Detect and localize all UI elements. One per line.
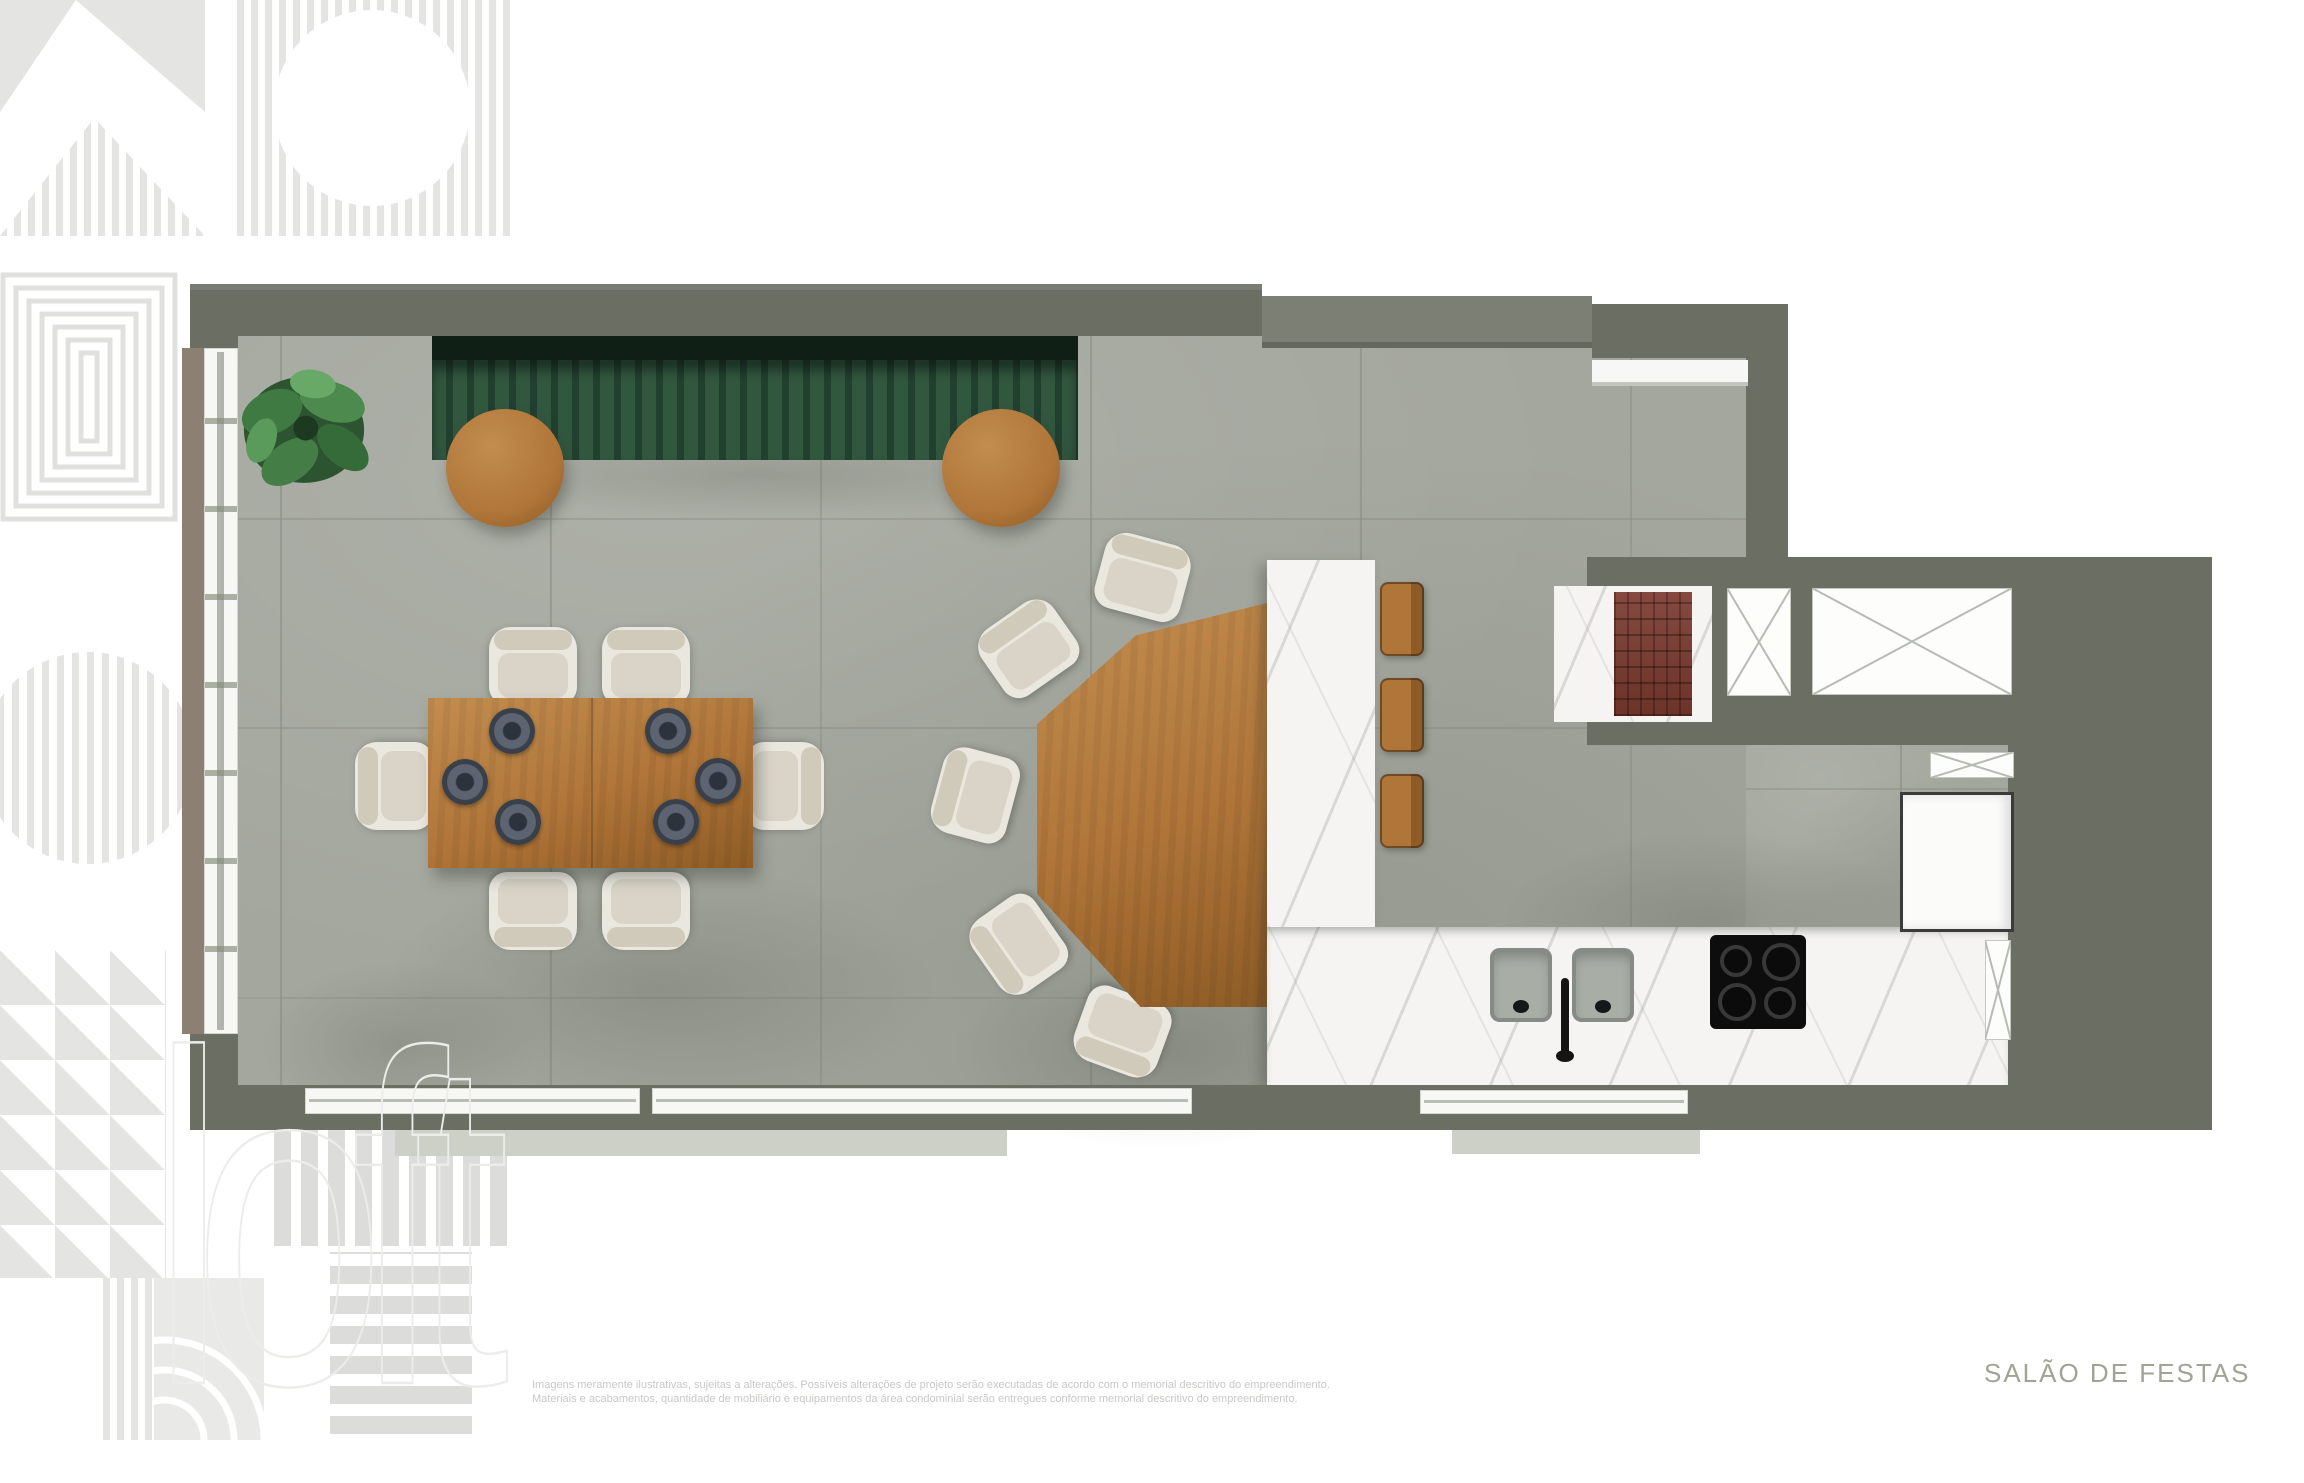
left-wall-top-corner <box>190 296 238 348</box>
striped-triangle-shape <box>0 118 205 236</box>
cooktop <box>1710 935 1806 1029</box>
round-side-table-2 <box>942 409 1060 527</box>
round-side-table-1 <box>446 409 564 527</box>
disclaimer-text: Imagens meramente ilustrativas, sujeitas… <box>532 1378 1532 1406</box>
dining-chair <box>489 872 577 950</box>
dinner-plate <box>442 759 488 805</box>
chair-back <box>358 747 378 825</box>
dinner-plate <box>489 708 535 754</box>
cooktop-burner <box>1764 987 1796 1019</box>
circle-shape <box>274 10 470 206</box>
chair-seat <box>498 653 568 698</box>
chair-seat <box>498 879 568 924</box>
sink-drain <box>1513 1000 1529 1013</box>
chair-back <box>494 927 572 947</box>
loft-watermark: loft <box>150 1005 475 1437</box>
pattern-stripe-bar <box>96 1278 154 1440</box>
bar-stool <box>1380 774 1424 848</box>
shaft-large <box>1812 588 2012 695</box>
counter-end-shaft <box>1985 940 2011 1040</box>
chair-back <box>607 927 685 947</box>
vent-rect <box>1930 752 2014 778</box>
chair-back <box>607 630 685 650</box>
cooktop-burner <box>1718 983 1756 1021</box>
grill-churrasqueira <box>1614 592 1692 716</box>
chair-back <box>801 747 821 825</box>
monstera-plant <box>215 345 393 513</box>
exterior-step-left <box>395 1130 1007 1156</box>
top-wall <box>190 284 1262 336</box>
exterior-step-right <box>1452 1130 1700 1154</box>
bar-stool <box>1380 582 1424 656</box>
dinner-plate <box>645 708 691 754</box>
door-track-line <box>656 1099 1188 1102</box>
shaft-small <box>1727 588 1791 696</box>
chair-seat <box>611 653 681 698</box>
dinner-plate <box>653 799 699 845</box>
table-seam <box>591 698 593 868</box>
kitchen-wing-inner-block <box>2008 745 2167 1085</box>
disclaimer-line-1: Imagens meramente ilustrativas, sujeitas… <box>532 1378 1532 1392</box>
disclaimer-line-2: Materiais e acabamentos, quantidade de m… <box>532 1392 1532 1406</box>
room-name-label: SALÃO DE FESTAS <box>1984 1358 2250 1389</box>
plant-leaves <box>215 345 393 513</box>
pattern-triangle-checker <box>0 950 166 1278</box>
refrigerator <box>1900 792 2014 932</box>
window-glass-line <box>217 352 224 1030</box>
top-wall-step <box>1262 296 1592 348</box>
window-track-line <box>1424 1100 1684 1103</box>
top-wall-right <box>1592 304 1788 358</box>
sink-faucet-head <box>1556 1050 1574 1062</box>
dinner-plate <box>695 758 741 804</box>
sink-drain <box>1595 1000 1611 1013</box>
kitchen-counter <box>1267 927 2008 1085</box>
pattern-striped-triangle-tile <box>0 118 205 236</box>
bench-shadow-band <box>432 336 1078 360</box>
pattern-triangle-tile <box>0 0 205 112</box>
concentric-squares <box>0 272 178 522</box>
dining-chair <box>746 742 824 830</box>
pattern-striped-circle <box>0 652 194 864</box>
dining-chair <box>355 742 433 830</box>
pattern-stripes-circle-tile <box>237 0 512 236</box>
left-window-wall <box>204 348 238 1034</box>
dining-chair <box>602 872 690 950</box>
pattern-concentric-squares-tile <box>0 272 178 522</box>
sink-faucet <box>1561 978 1569 1058</box>
chair-seat <box>381 751 426 821</box>
dining-chair <box>602 627 690 705</box>
dining-chair <box>489 627 577 705</box>
right-wall-upper <box>1746 358 1788 557</box>
dinner-plate <box>495 799 541 845</box>
cooktop-burner <box>1762 943 1800 981</box>
ac-ledge <box>1592 360 1748 386</box>
kitchen-wing-right-wall <box>2167 583 2212 1128</box>
chair-seat <box>753 751 798 821</box>
chair-back <box>494 630 572 650</box>
bar-stool <box>1380 678 1424 752</box>
triangle-shape <box>0 0 205 112</box>
bottom-window-kitchen <box>1420 1090 1688 1114</box>
bottom-sliding-door-2 <box>652 1088 1192 1114</box>
cooktop-burner <box>1720 945 1752 977</box>
chair-seat <box>611 879 681 924</box>
